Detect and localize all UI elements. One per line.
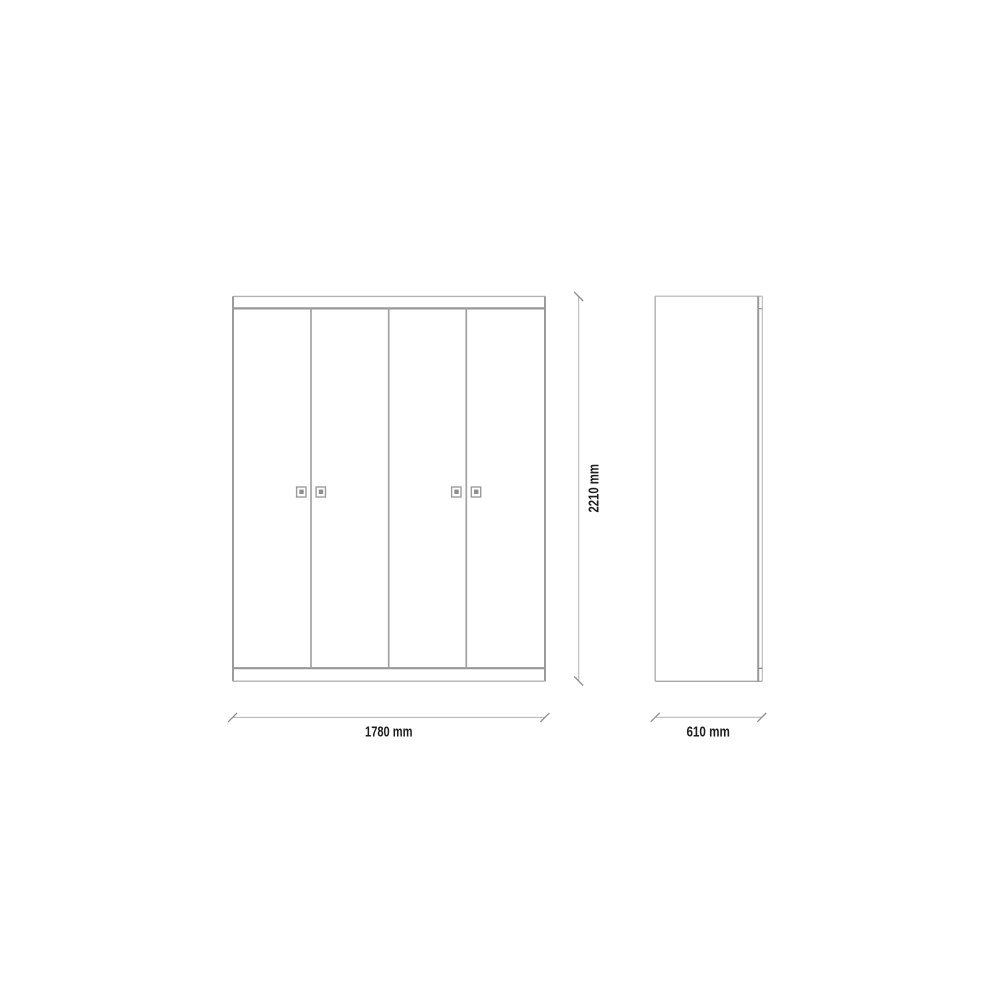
svg-text:2210 mm: 2210 mm — [586, 464, 603, 513]
svg-text:1780 mm: 1780 mm — [365, 724, 413, 741]
svg-text:610 mm: 610 mm — [686, 724, 730, 741]
